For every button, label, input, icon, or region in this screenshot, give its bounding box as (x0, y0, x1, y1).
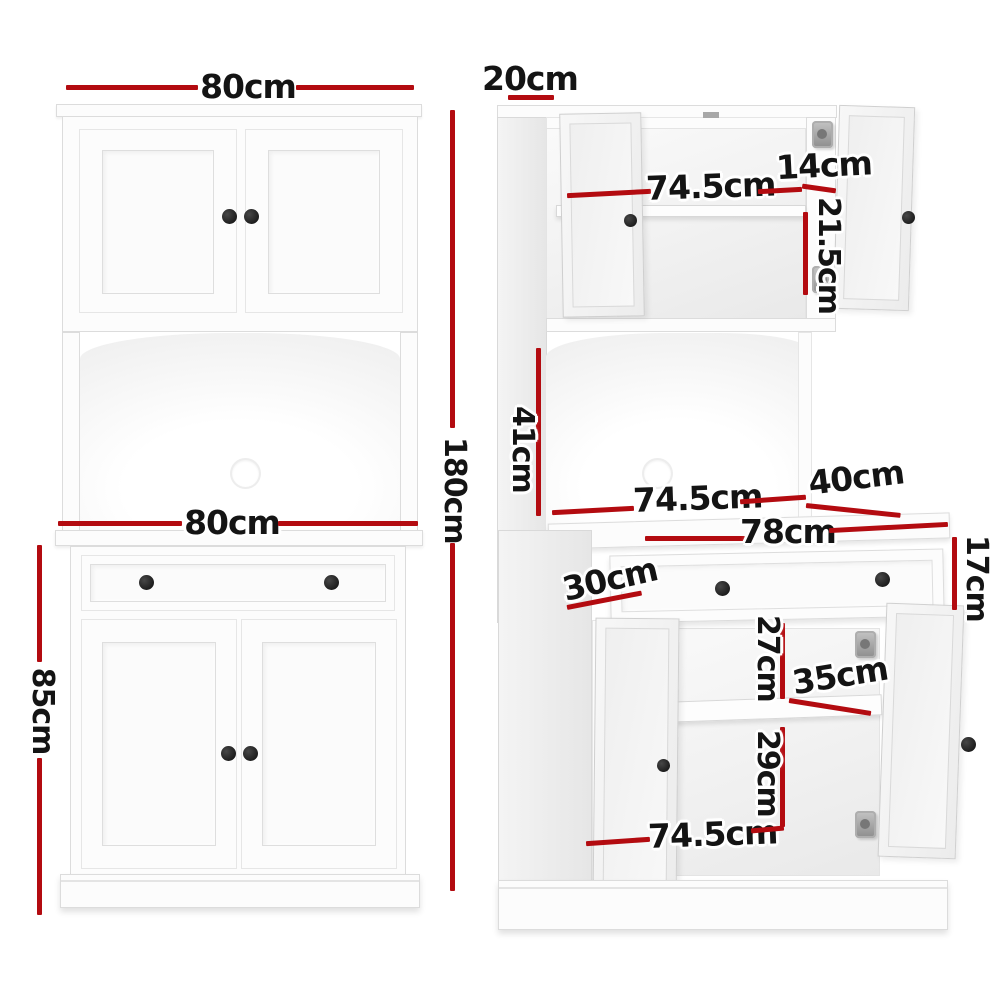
product-dimension-diagram: 80cm 180cm 80cm 85cm (0, 0, 1000, 1000)
dim-total-height-label: 180cm (435, 437, 469, 537)
side-hutch-bottom-rail (546, 318, 836, 332)
dim-shelf-upper-label: 27cm (748, 615, 782, 697)
base-open-door-left-knob (657, 759, 670, 772)
base-door-right-knob (243, 746, 258, 761)
hutch-door-right (245, 129, 403, 313)
hutch-open-door-right-knob (902, 211, 915, 224)
base-hinge-bottom-icon (855, 811, 876, 838)
hutch-door-left (79, 129, 237, 313)
base-door-right-panel (262, 642, 376, 846)
plinth-side-molding (499, 887, 947, 889)
hutch-body (62, 116, 418, 332)
dim-base-width-label: 74.5cm (647, 816, 754, 853)
dim-alcove-height-label: 41cm (503, 406, 537, 490)
dim-alcove-width-label: 74.5cm (632, 480, 741, 517)
hutch-door-left-panel (102, 150, 214, 294)
door-catch (703, 112, 719, 118)
hutch-door-left-knob (222, 209, 237, 224)
hutch-door-right-knob (244, 209, 259, 224)
dim-base-height-line-bottom (37, 758, 42, 915)
hutch-open-door-left-knob (624, 214, 637, 227)
base-open-door-right-knob (961, 737, 976, 752)
dim-base-height-line-top (37, 545, 42, 662)
dim-front-width-label: 80cm (198, 70, 298, 103)
hutch-open-door-right-panel (843, 115, 905, 301)
dim-front-width-line-right (296, 85, 414, 90)
drawer-knob-left (139, 575, 154, 590)
dim-counter-width-line-right (278, 521, 418, 526)
base-open-door-right (878, 603, 965, 860)
dim-drawer-height-label: 17cm (957, 535, 991, 617)
dim-hutch-width-label: 74.5cm (645, 168, 756, 205)
dim-total-height-line-bottom (450, 543, 455, 891)
base-body (70, 546, 406, 876)
dim-hutch-shelf-depth-label: 14cm (775, 147, 865, 185)
dim-total-height-line-top (450, 110, 455, 428)
base-door-right (241, 619, 397, 869)
dim-base-height-label: 85cm (23, 665, 57, 757)
dim-bench-width-label: 78cm (740, 515, 832, 548)
dim-depth-label: 20cm (482, 62, 574, 95)
dim-counter-width-label: 80cm (184, 506, 280, 539)
dim-bench-width-line-left (645, 536, 745, 541)
base-open-door-right-panel (888, 613, 954, 849)
hutch-door-right-panel (268, 150, 380, 294)
alcove-side-left (62, 332, 80, 532)
dim-counter-width-line-left (58, 521, 182, 526)
dim-shelf-lower-label: 29cm (748, 730, 782, 812)
dim-hutch-shelf-height-line (803, 212, 808, 295)
plinth-front (60, 874, 420, 908)
alcove-side-right (400, 332, 418, 532)
drawer-knob-right (324, 575, 339, 590)
dim-front-width-line-left (66, 85, 198, 90)
drawer-front (81, 555, 395, 611)
base-door-left-knob (221, 746, 236, 761)
open-drawer-knob-left (715, 581, 730, 596)
plinth-molding (61, 880, 419, 882)
open-drawer-knob-right (875, 572, 890, 587)
base-door-left (81, 619, 237, 869)
dim-depth-line (508, 95, 554, 100)
base-door-left-panel (102, 642, 216, 846)
plinth-side (498, 880, 948, 930)
hutch-hinge-top-icon (812, 121, 833, 148)
drawer-front-groove (90, 564, 386, 602)
dim-base-depth-label: 40cm (806, 455, 905, 499)
dim-hutch-shelf-height-label: 21.5cm (809, 197, 843, 313)
cable-hole (232, 460, 259, 487)
